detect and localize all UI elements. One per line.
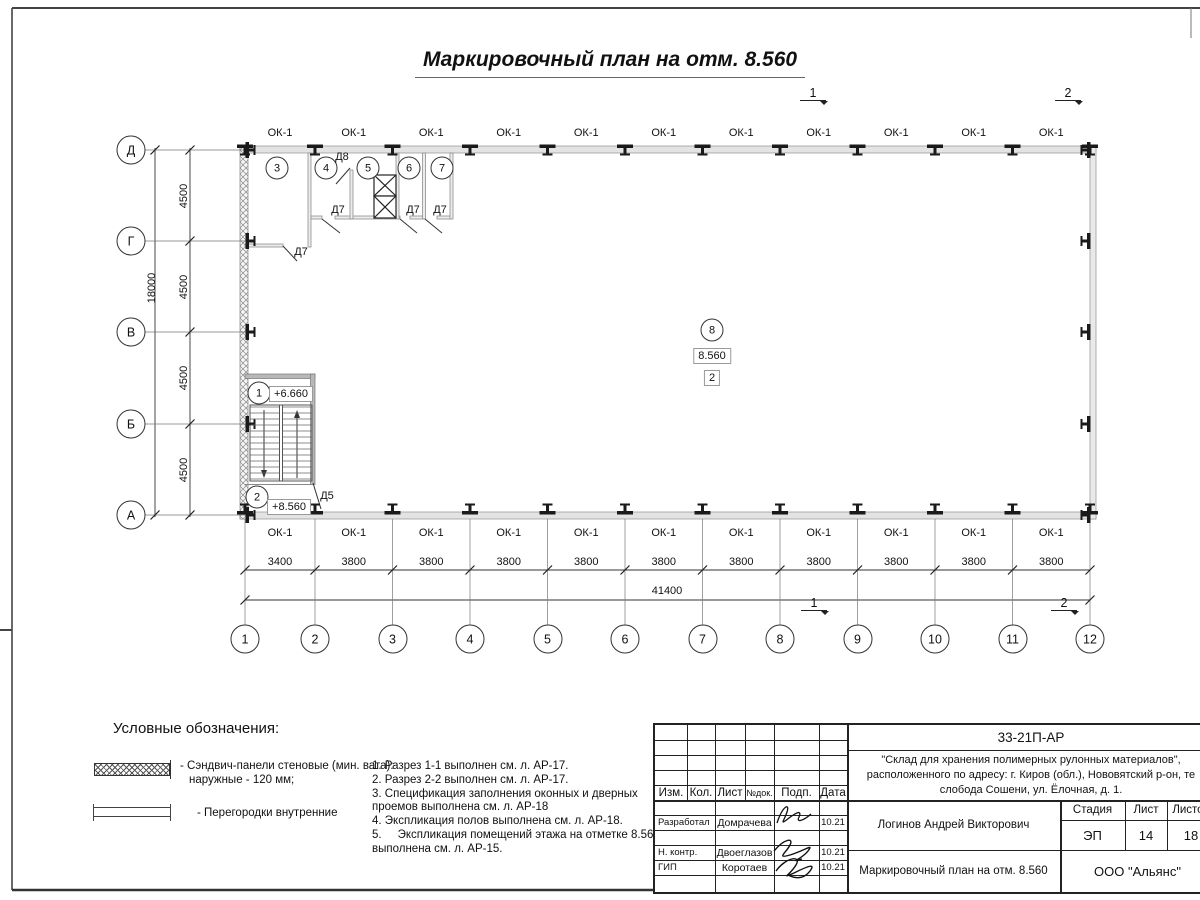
column-ibeam [772,511,788,515]
tb-header-data: Дата [819,785,847,800]
grid-circle-column: 1 [231,625,260,654]
column-ibeam [310,154,320,156]
column-ibeam [1083,240,1088,243]
column-ibeam [930,154,940,156]
room-number-circle: 8 [701,319,724,342]
door-label: Д7 [294,246,308,258]
column-ibeam [620,504,630,506]
dim-label: 3800 [497,556,521,568]
column-ibeam [254,236,256,246]
tb-role: Разработал [655,815,718,830]
window-mark-label: ОК-1 [496,127,521,139]
window-mark-label: ОК-1 [268,127,293,139]
tb-doc-code: 33-21П-АР [847,725,1200,750]
column-ibeam [856,506,859,512]
grid-circle-column: 4 [456,625,485,654]
grid-circle-row: Б [117,410,146,439]
tb-stage-header: Стадия [1060,800,1125,820]
grid-circle-column: 3 [378,625,407,654]
window-mark-label: ОК-1 [729,127,754,139]
column-ibeam [388,504,398,506]
column-ibeam [469,148,472,154]
column-ibeam [934,148,937,154]
dim-label: 3800 [1039,556,1063,568]
column-ibeam [1011,148,1014,154]
column-ibeam [927,511,943,515]
column-ibeam [465,504,475,506]
dim-total-label: 18000 [146,273,158,304]
room-number-circle: 7 [431,157,454,180]
dim-total-label: 41400 [652,585,683,597]
column-ibeam [927,145,943,149]
tb-header-kol: Кол. [687,785,715,800]
column-ibeam [775,154,785,156]
column-ibeam [1011,506,1014,512]
grid-circle-column: 9 [843,625,872,654]
elevation-box: 8.560 [693,348,731,364]
column-ibeam [617,145,633,149]
room-number-circle: 1 [248,382,271,405]
column-ibeam [314,148,317,154]
dim-label: 3800 [729,556,753,568]
column-ibeam [314,506,317,512]
column-ibeam [701,506,704,512]
grid-circle-column: 7 [688,625,717,654]
column-ibeam [462,511,478,515]
drawing-sheet: { "sheet": { "title": "Маркировочный пла… [0,0,1200,900]
shaft [374,175,396,218]
column-ibeam [546,506,549,512]
tb-drawing-name: Маркировочный план на отм. 8.560 [847,850,1060,892]
column-ibeam [465,154,475,156]
window-mark-label: ОК-1 [651,127,676,139]
column-ibeam [1081,145,1083,155]
legend-item-partitions: - Перегородки внутренние [197,806,338,820]
column-ibeam [1081,510,1083,520]
grid-circle-column: 5 [533,625,562,654]
tb-project-line: расположенного по адресу: г. Киров (обл.… [847,767,1200,782]
tb-header-ndok: №док. [745,785,774,800]
tb-sheets-value: 18 [1167,820,1200,850]
elevation-box: +8.560 [267,499,311,515]
column-ibeam [237,145,253,149]
section-mark: 1 [801,597,827,611]
window-mark-label: ОК-1 [268,527,293,539]
window-mark-label: ОК-1 [806,527,831,539]
column-ibeam [1081,327,1083,337]
tb-name: Домрачева [715,815,774,830]
window-mark-label: ОК-1 [1039,527,1064,539]
window-mark-label: ОК-1 [419,127,444,139]
dim-label: 4500 [178,457,190,481]
tb-date: 10.21 [819,860,847,875]
window-mark-label: ОК-1 [574,527,599,539]
signature [773,801,815,831]
door-label: Д7 [406,204,420,216]
column-ibeam [543,504,553,506]
column-ibeam [1081,419,1083,429]
column-ibeam [462,145,478,149]
window-mark-label: ОК-1 [884,527,909,539]
room-number-circle: 4 [315,157,338,180]
window-mark-label: ОК-1 [806,127,831,139]
page-title: Маркировочный план на отм. 8.560 [380,48,840,78]
section-mark: 1 [800,87,826,101]
tb-company: ООО "Альянс" [1060,850,1200,892]
column-ibeam [246,324,250,340]
stair-direction-arrows [261,410,300,478]
column-ibeam [775,504,785,506]
column-ibeam [850,511,866,515]
legend-item-sandwich-2: наружные - 120 мм; [189,773,294,787]
column-ibeam [853,154,863,156]
window-mark-label: ОК-1 [574,127,599,139]
column-ibeam [1083,514,1088,517]
dim-label: 3800 [574,556,598,568]
sandwich-panel-symbol [94,763,170,776]
door-label: Д7 [433,204,447,216]
zone-box: 2 [704,370,720,386]
grid-circle-column: 8 [766,625,795,654]
exterior-walls [240,146,1096,519]
window-mark-label: ОК-1 [419,527,444,539]
column-ibeam [1008,504,1018,506]
column-ibeam [249,514,254,517]
column-ibeam [388,154,398,156]
dim-label: 3800 [884,556,908,568]
signature [768,835,820,881]
tb-project-line: "Склад для хранения полимерных рулонных … [847,752,1200,767]
tb-sheets-header: Листов [1167,800,1200,820]
room-number-circle: 2 [246,486,269,509]
dim-label: 3800 [807,556,831,568]
column-ibeam [1083,423,1088,426]
grid-circle-column: 12 [1076,625,1105,654]
window-mark-label: ОК-1 [496,527,521,539]
window-mark-label: ОК-1 [341,527,366,539]
grid-circle-row: В [117,318,146,347]
grid-circle-row: Г [117,227,146,256]
column-ibeam [779,148,782,154]
door-label: Д5 [320,490,334,502]
column-ibeam [546,148,549,154]
elevation-box: +6.660 [269,386,313,402]
column-ibeam [307,145,323,149]
section-mark: 2 [1051,597,1077,611]
column-ibeam [391,506,394,512]
dim-label: 4500 [178,183,190,207]
column-ibeam [1087,142,1091,158]
dim-label: 3800 [419,556,443,568]
room-number-circle: 3 [266,157,289,180]
tb-sheet-header: Лист [1125,800,1167,820]
column-ibeam [1008,154,1018,156]
section-mark: 2 [1055,87,1081,101]
grid-circle-column: 11 [998,625,1027,654]
column-ibeam [254,419,256,429]
column-ibeam [1087,324,1091,340]
column-ibeam [695,511,711,515]
column-ibeam [620,154,630,156]
column-ibeam [246,233,250,249]
column-ibeam [1081,236,1083,246]
column-ibeam [249,331,254,334]
column-ibeam [254,327,256,337]
column-ibeam [391,148,394,154]
column-ibeam [249,149,254,152]
column-ibeam [698,154,708,156]
window-mark-label: ОК-1 [1039,127,1064,139]
grid-circle-column: 10 [921,625,950,654]
column-ibeam [772,145,788,149]
column-ibeam [469,506,472,512]
column-ibeam [698,504,708,506]
tb-person: Логинов Андрей Викторович [847,800,1060,850]
column-ibeam [1005,145,1021,149]
dim-label: 3800 [342,556,366,568]
column-ibeam [856,148,859,154]
room-number-circle: 6 [398,157,421,180]
titleblock: Изм. Кол. Лист №док. Подп. Дата Разработ… [653,723,1200,894]
column-ibeam [249,240,254,243]
grid-circle-row: А [117,501,146,530]
column-ibeam [310,504,320,506]
note: 2. Разрез 2-2 выполнен см. л. АР-17. [372,774,672,788]
column-ibeam [701,148,704,154]
tb-stage-value: ЭП [1060,820,1125,850]
tb-header-izm: Изм. [655,785,687,800]
window-mark-label: ОК-1 [651,527,676,539]
grid-circle-column: 6 [611,625,640,654]
tb-name: Двоеглазов [715,845,774,860]
sandwich-panel-symbol-cap [170,760,171,779]
tb-sheet-value: 14 [1125,820,1167,850]
column-ibeam [1005,511,1021,515]
dim-label: 3800 [652,556,676,568]
tb-project-line: слобода Сошени, ул. Ёлочная, д. 1. [847,782,1200,797]
column-ibeam [1087,507,1091,523]
window-mark-label: ОК-1 [961,127,986,139]
dim-label: 4500 [178,274,190,298]
note: 5. Экспликация помещений этажа на отметк… [372,829,672,857]
dim-label: 4500 [178,366,190,390]
tb-header-list: Лист [715,785,745,800]
column-ibeam [850,145,866,149]
note: 3. Спецификация заполнения оконных и две… [372,788,672,816]
dim-label: 3400 [268,556,292,568]
legend-heading: Условные обозначения: [113,720,279,737]
column-ibeam [1087,233,1091,249]
column-ibeam [385,511,401,515]
column-ibeam [695,145,711,149]
column-ibeam [1083,149,1088,152]
column-ibeam [254,145,256,155]
grid-circle-row: Д [117,136,146,165]
dim-label: 3800 [962,556,986,568]
column-ibeam [624,148,627,154]
door-label: Д7 [331,204,345,216]
column-ibeam [853,504,863,506]
partition-symbol [94,807,170,817]
window-mark-label: ОК-1 [961,527,986,539]
column-ibeam [1087,416,1091,432]
tb-date: 10.21 [819,845,847,860]
tb-role: Н. контр. [655,845,718,860]
column-ibeam [1085,504,1095,506]
column-ibeam [543,154,553,156]
window-mark-label: ОК-1 [729,527,754,539]
column-ibeam [540,145,556,149]
notes: 1. Разрез 1-1 выполнен см. л. АР-17. 2. … [372,760,672,857]
tb-role: ГИП [655,860,718,875]
room-number-circle: 5 [357,157,380,180]
door-label: Д8 [335,151,349,163]
column-ibeam [246,507,250,523]
column-ibeam [617,511,633,515]
tb-header-podp: Подп. [774,785,819,800]
column-ibeam [934,506,937,512]
tb-name: Коротаев [715,860,774,875]
column-ibeam [246,142,250,158]
note: 1. Разрез 1-1 выполнен см. л. АР-17. [372,760,672,774]
column-ibeam [779,506,782,512]
column-ibeam [254,510,256,520]
column-ibeam [246,416,250,432]
window-mark-label: ОК-1 [341,127,366,139]
legend-item-sandwich: - Сэндвич-панели стеновые (мин. вата): [180,759,394,773]
column-ibeam [1083,331,1088,334]
tb-date: 10.21 [819,815,847,830]
note: 4. Экспликация полов выполнена см. л. АР… [372,815,672,829]
column-ibeam [540,511,556,515]
column-ibeam [385,145,401,149]
column-ibeam [930,504,940,506]
grid-circle-column: 2 [301,625,330,654]
window-mark-label: ОК-1 [884,127,909,139]
column-ibeam [624,506,627,512]
